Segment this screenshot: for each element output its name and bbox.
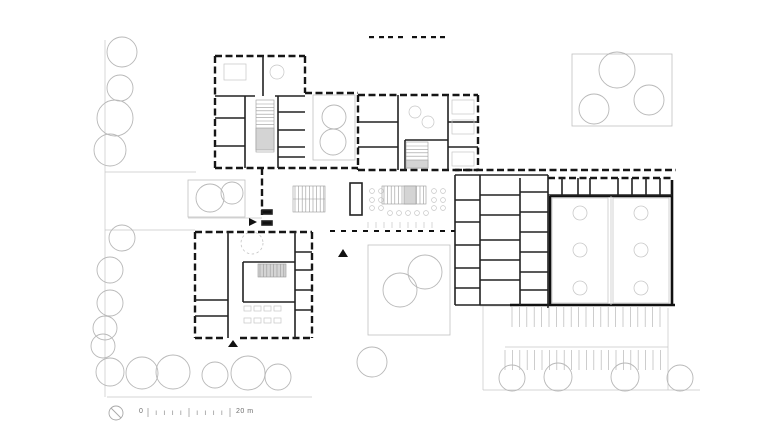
scale-north <box>109 406 230 420</box>
scale-end-label: 20 m <box>236 408 254 415</box>
court-markings <box>552 196 669 305</box>
bike-racks <box>369 36 445 38</box>
entrance-arrows <box>228 218 348 347</box>
floor-plan-canvas: 0 20 m <box>0 0 780 440</box>
floor-plan-drawing <box>0 0 780 440</box>
parking-ticks <box>505 307 660 370</box>
hall-walls <box>510 180 675 305</box>
patio-tree-dashed <box>241 232 263 254</box>
scale-zero-label: 0 <box>139 408 143 415</box>
stair-details <box>256 100 428 277</box>
